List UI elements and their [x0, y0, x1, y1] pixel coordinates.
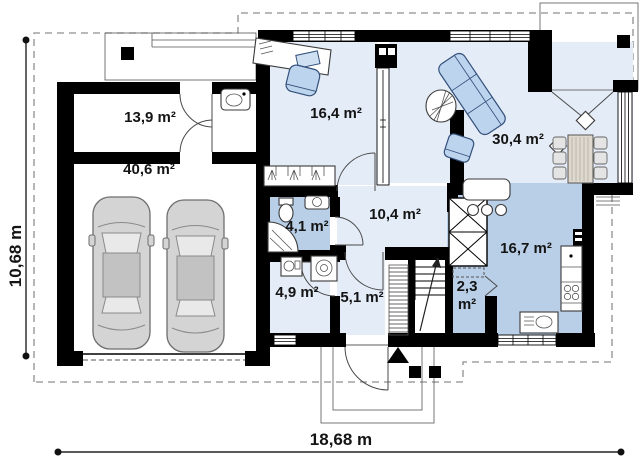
sliding-door: [377, 68, 389, 185]
living-room-label: 30,4 m²: [492, 131, 544, 148]
bar-stool: [496, 205, 507, 216]
porch-bottom: [321, 345, 441, 423]
bathroom-label: 4,1 m²: [285, 218, 328, 235]
plant: [426, 90, 456, 122]
dimension-bottom: 18,68 m: [55, 430, 625, 456]
width-dimension-label: 18,68 m: [310, 430, 372, 449]
pantry-label-line1: 2,3: [457, 278, 478, 295]
living-room-side-window: [618, 92, 632, 183]
hall-label: 10,4 m²: [369, 206, 421, 223]
car-2: [163, 200, 228, 352]
porch-column: [409, 366, 421, 378]
office-window: [293, 31, 355, 41]
dining-chair: [594, 167, 607, 179]
bar-stool: [468, 205, 479, 216]
living-room-window: [450, 31, 530, 41]
garage-cars: [89, 197, 228, 352]
dimension-left: 10,68 m: [6, 37, 30, 360]
utility-sink: [221, 89, 250, 110]
utility-garage-door: [180, 120, 212, 152]
utility-room-label: 13,9 m²: [124, 109, 176, 126]
front-door-utility: [180, 94, 212, 127]
kitchen-island: [463, 179, 510, 216]
floor-plan-svg: 13,9 m² 40,6 m² 16,4 m² 30,4 m² 4,1 m² 1…: [0, 0, 640, 466]
dining-chair: [553, 167, 566, 179]
bathroom-sink: [305, 196, 329, 209]
entrance-arrow: [387, 347, 409, 363]
porch-column: [121, 47, 134, 60]
corridor-label: 5,1 m²: [340, 289, 383, 306]
pantry-label-line2: m²: [458, 296, 476, 313]
washing-machine: [311, 256, 337, 281]
kitchen-sink-unit: [520, 312, 558, 333]
laundry-sink: [281, 257, 302, 276]
car-1: [89, 197, 154, 349]
garage-door: [83, 354, 245, 360]
kitchen-counter: [561, 246, 582, 311]
entrance-door: [345, 347, 388, 390]
terrace-column: [617, 35, 630, 48]
bar-stool: [482, 205, 493, 216]
laundry-label: 4,9 m²: [275, 284, 318, 301]
dining-set: [553, 135, 607, 183]
porch-column: [429, 366, 441, 378]
garage-label: 40,6 m²: [123, 161, 175, 178]
floor-plan-page: 13,9 m² 40,6 m² 16,4 m² 30,4 m² 4,1 m² 1…: [0, 0, 640, 466]
dining-chair: [553, 152, 566, 164]
laundry-window: [274, 335, 296, 345]
height-dimension-label: 10,68 m: [6, 225, 25, 287]
kitchen-label: 16,7 m²: [500, 240, 552, 257]
dining-chair: [594, 137, 607, 149]
office-wardrobe: [264, 166, 335, 186]
kitchen-window: [498, 335, 556, 345]
porch-top: [105, 33, 256, 80]
office-label: 16,4 m²: [310, 105, 362, 122]
dining-chair: [594, 152, 607, 164]
fireplace: [375, 44, 397, 68]
exterior-steps: [596, 197, 620, 205]
boiler-unit: [573, 229, 584, 246]
dining-chair: [553, 137, 566, 149]
